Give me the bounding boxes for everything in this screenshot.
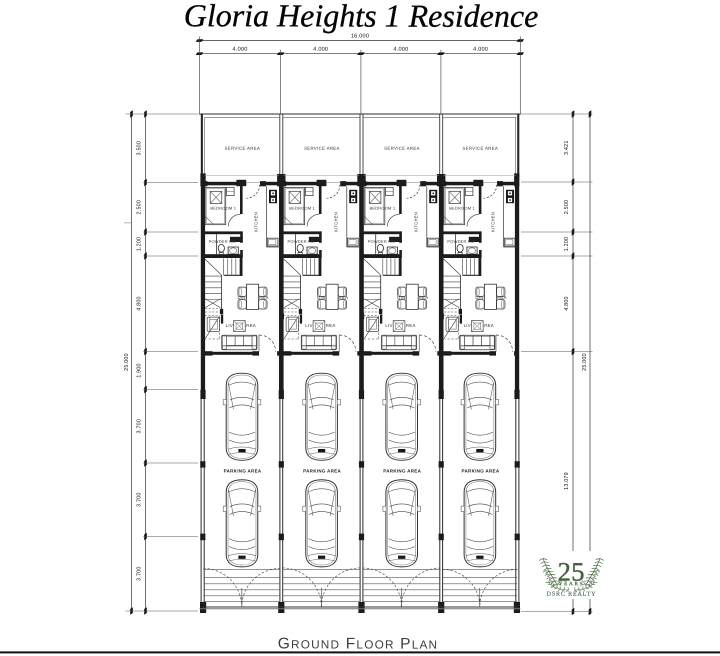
- svg-text:4.000: 4.000: [313, 47, 328, 53]
- svg-text:GROUND FLOOR PLAN: GROUND FLOOR PLAN: [278, 635, 439, 652]
- svg-text:25.000: 25.000: [124, 353, 130, 371]
- svg-text:13.079: 13.079: [564, 472, 570, 490]
- svg-text:Gloria Heights 1 Residence: Gloria Heights 1 Residence: [184, 0, 539, 34]
- svg-text:4.800: 4.800: [137, 296, 143, 311]
- svg-text:3.700: 3.700: [137, 419, 143, 434]
- svg-text:POWDER RM: POWDER RM: [288, 239, 315, 244]
- svg-text:SERVICE AREA: SERVICE AREA: [462, 146, 498, 151]
- svg-text:4.000: 4.000: [473, 47, 488, 53]
- svg-text:KITCHEN: KITCHEN: [490, 212, 495, 232]
- svg-text:BEDROOM 1: BEDROOM 1: [210, 206, 236, 211]
- svg-text:BEDROOM 1: BEDROOM 1: [449, 206, 475, 211]
- svg-text:DSRC REALTY: DSRC REALTY: [547, 592, 597, 598]
- svg-text:PARKING AREA: PARKING AREA: [303, 468, 341, 473]
- svg-text:PARKING AREA: PARKING AREA: [462, 468, 500, 473]
- svg-text:POWDER RM: POWDER RM: [447, 239, 474, 244]
- svg-text:KITCHEN: KITCHEN: [253, 212, 258, 232]
- svg-text:SERVICE AREA: SERVICE AREA: [304, 146, 340, 151]
- svg-text:BEDROOM 1: BEDROOM 1: [369, 206, 395, 211]
- svg-text:4.000: 4.000: [233, 47, 248, 53]
- svg-text:YEARS: YEARS: [559, 581, 585, 587]
- svg-text:3.500: 3.500: [137, 141, 143, 156]
- svg-text:POWDER RM: POWDER RM: [209, 239, 236, 244]
- svg-text:16.000: 16.000: [351, 33, 369, 39]
- svg-text:PARKING AREA: PARKING AREA: [383, 468, 421, 473]
- svg-text:POWDER RM: POWDER RM: [368, 239, 395, 244]
- svg-text:4.000: 4.000: [393, 47, 408, 53]
- svg-text:2.500: 2.500: [564, 200, 570, 215]
- svg-text:KITCHEN: KITCHEN: [334, 212, 339, 232]
- svg-text:1.900: 1.900: [137, 363, 143, 378]
- svg-text:1.200: 1.200: [564, 237, 570, 252]
- svg-text:25.000: 25.000: [582, 353, 588, 371]
- svg-text:3.421: 3.421: [564, 140, 570, 155]
- svg-text:SERVICE AREA: SERVICE AREA: [225, 146, 261, 151]
- svg-text:3.700: 3.700: [137, 566, 143, 581]
- svg-text:SERVICE AREA: SERVICE AREA: [384, 146, 420, 151]
- svg-text:4.800: 4.800: [564, 296, 570, 311]
- svg-text:KITCHEN: KITCHEN: [414, 212, 419, 232]
- svg-text:PARKING AREA: PARKING AREA: [224, 468, 262, 473]
- svg-text:1.200: 1.200: [137, 237, 143, 252]
- svg-text:BEDROOM 1: BEDROOM 1: [289, 206, 315, 211]
- svg-text:2.500: 2.500: [137, 200, 143, 215]
- svg-text:3.700: 3.700: [137, 492, 143, 507]
